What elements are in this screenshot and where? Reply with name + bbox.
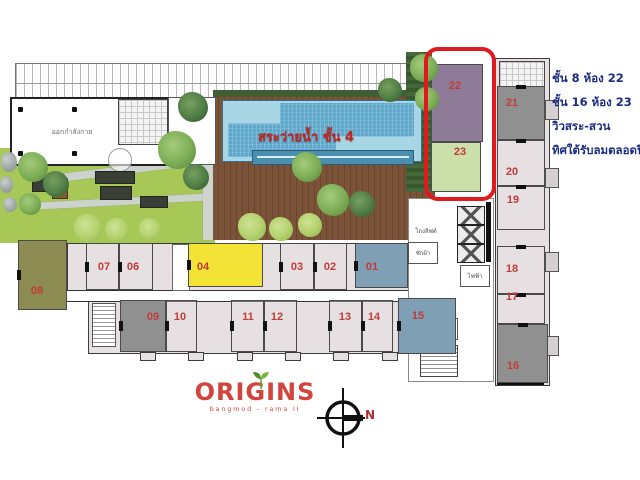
door-tick bbox=[516, 185, 526, 189]
tree bbox=[269, 217, 293, 241]
unit-11 bbox=[231, 300, 264, 352]
compass-north-label: N bbox=[365, 408, 375, 422]
annotation-line: ทิศใต้รับลมตลอดปี bbox=[552, 138, 640, 162]
unit-number-16: 16 bbox=[502, 360, 524, 372]
balcony-bump bbox=[188, 352, 204, 361]
unit-number-07: 07 bbox=[93, 261, 115, 273]
planter bbox=[140, 196, 168, 208]
balcony-bump bbox=[333, 352, 349, 361]
unit-number-21: 21 bbox=[501, 97, 523, 109]
unit-number-03: 03 bbox=[286, 261, 308, 273]
unit-09 bbox=[120, 300, 166, 352]
compass: N bbox=[315, 385, 387, 455]
door-tick bbox=[516, 85, 526, 89]
balcony-bump bbox=[285, 352, 301, 361]
balcony-bump bbox=[140, 352, 156, 361]
unit-14 bbox=[362, 300, 393, 352]
tree bbox=[178, 92, 208, 122]
unit-number-02: 02 bbox=[319, 261, 341, 273]
unit-08 bbox=[18, 240, 67, 310]
planter bbox=[95, 171, 135, 184]
door-tick bbox=[17, 270, 21, 280]
unit-10 bbox=[166, 300, 197, 352]
tree bbox=[298, 213, 322, 237]
door-tick bbox=[230, 321, 234, 331]
tree bbox=[349, 191, 375, 217]
unit-12 bbox=[264, 300, 297, 352]
unit-number-12: 12 bbox=[266, 311, 288, 323]
door-tick bbox=[279, 262, 283, 272]
tree bbox=[19, 193, 41, 215]
logo-subtitle: bangmod - rama II bbox=[192, 405, 318, 413]
compass-icon bbox=[315, 385, 387, 455]
door-tick bbox=[85, 262, 89, 272]
annotation-line: ชั้น 16 ห้อง 23 bbox=[552, 90, 640, 114]
balcony-bump bbox=[382, 352, 398, 361]
unit-15 bbox=[398, 298, 456, 354]
tree bbox=[292, 152, 322, 182]
tree bbox=[183, 164, 209, 190]
door-tick bbox=[397, 321, 401, 331]
annotation-line: วิวสระ-สวน bbox=[552, 114, 640, 138]
door-tick bbox=[354, 261, 358, 271]
door-tick bbox=[516, 139, 526, 143]
sprout-icon bbox=[250, 368, 272, 390]
annotation-text-block: ชั้น 8 ห้อง 22ชั้น 16 ห้อง 23วิวสระ-สวนท… bbox=[552, 66, 640, 162]
tree bbox=[317, 184, 349, 216]
unit-number-15: 15 bbox=[407, 310, 429, 322]
unit-21 bbox=[497, 86, 545, 140]
unit-number-14: 14 bbox=[363, 311, 385, 323]
unit-number-19: 19 bbox=[502, 194, 524, 206]
planter bbox=[100, 186, 132, 200]
unit-number-04: 04 bbox=[192, 261, 214, 273]
unit-number-11: 11 bbox=[237, 311, 259, 323]
unit-number-20: 20 bbox=[501, 166, 523, 178]
tree bbox=[139, 218, 161, 240]
tree bbox=[105, 218, 129, 242]
unit-16 bbox=[497, 324, 548, 383]
tree bbox=[74, 214, 102, 242]
unit-number-09: 09 bbox=[142, 311, 164, 323]
site-plan-canvas: สระว่ายน้ำ ชั้น 4 ออกกำลังกาย โถงลิฟต์ ซ… bbox=[0, 0, 640, 480]
unit-19 bbox=[497, 186, 545, 230]
door-tick bbox=[328, 321, 332, 331]
unit-number-08: 08 bbox=[26, 285, 48, 297]
balcony-bump bbox=[237, 352, 253, 361]
door-tick bbox=[516, 245, 526, 249]
tree bbox=[158, 131, 196, 169]
annotation-line: ชั้น 8 ห้อง 22 bbox=[552, 66, 640, 90]
unit-number-18: 18 bbox=[501, 263, 523, 275]
unit-number-13: 13 bbox=[334, 311, 356, 323]
door-tick bbox=[187, 260, 191, 270]
highlight-outline-units-22-23 bbox=[424, 47, 496, 201]
unit-number-01: 01 bbox=[361, 261, 383, 273]
tree bbox=[238, 213, 266, 241]
unit-20 bbox=[497, 140, 545, 186]
door-tick bbox=[119, 321, 123, 331]
tree bbox=[43, 171, 69, 197]
door-tick bbox=[518, 323, 528, 327]
unit-number-10: 10 bbox=[169, 311, 191, 323]
unit-number-17: 17 bbox=[501, 291, 523, 303]
unit-number-06: 06 bbox=[122, 261, 144, 273]
tree bbox=[378, 78, 402, 102]
door-tick bbox=[313, 262, 317, 272]
unit-13 bbox=[329, 300, 362, 352]
